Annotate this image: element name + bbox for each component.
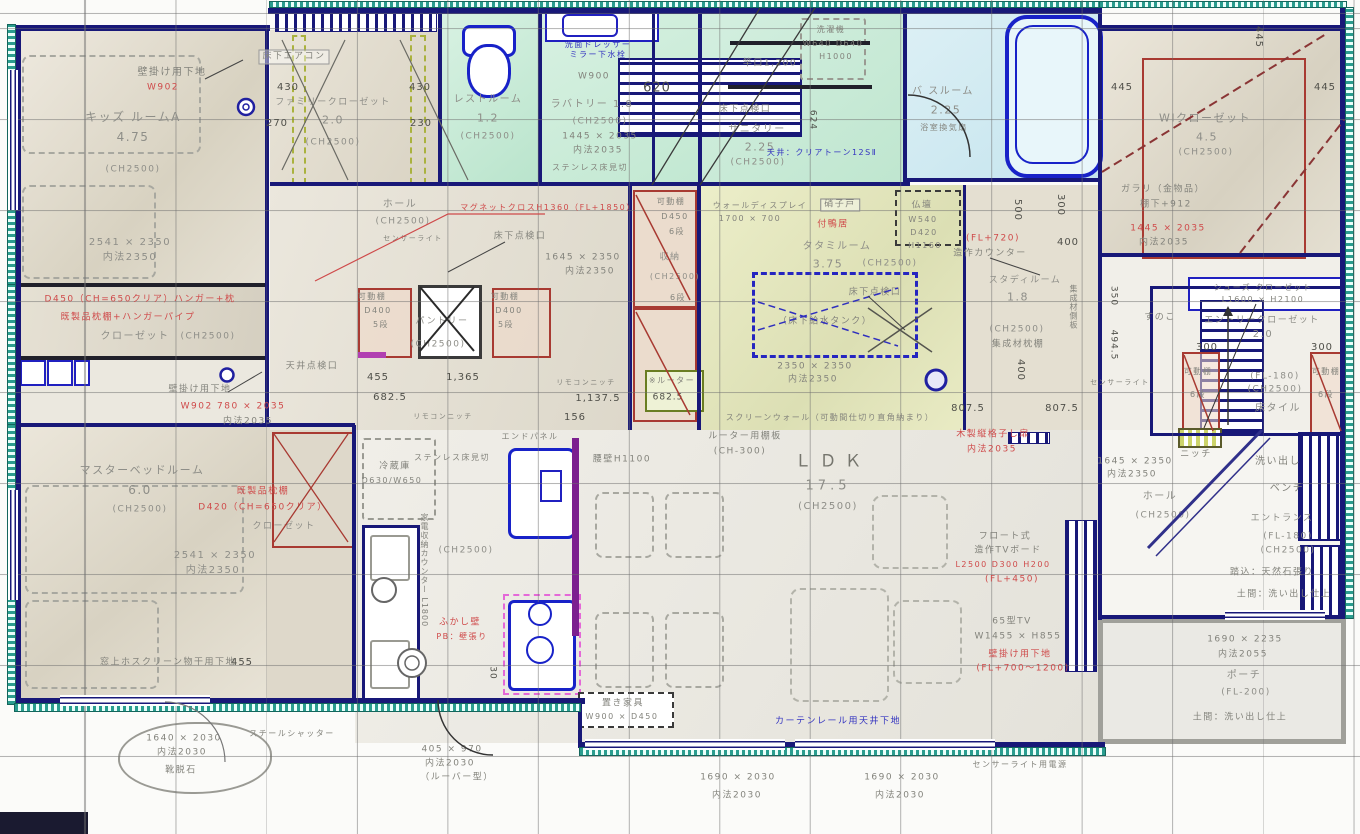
lavatory-inner-label: 内法2035	[573, 147, 623, 156]
dining-chair-icon	[665, 492, 724, 558]
wall-segment	[697, 185, 701, 430]
restroom-size-label: 1.2	[477, 113, 499, 124]
butsudan-w-label: W540	[908, 216, 937, 224]
floor-tile-label: 床タイル	[1255, 404, 1301, 414]
placed-furniture-label: 置き家具	[602, 700, 644, 709]
window-symbol	[20, 360, 46, 386]
window	[8, 490, 18, 600]
study-fl-label: (FL+720)	[966, 235, 1020, 244]
entry-closet-size-label: 2.0	[1253, 330, 1273, 340]
exterior-hatch	[8, 285, 15, 425]
wall-segment	[1150, 433, 1345, 436]
dim-1137-5: 1,137.5	[575, 394, 620, 404]
tv-wall-fl-label: (FL+700〜1200)	[976, 665, 1069, 674]
entry-fl-label: (FL-180)	[1250, 373, 1299, 382]
shelf-count-label: 6段	[1190, 391, 1206, 399]
laminated-shelf-label: 集成材枕棚	[992, 341, 1045, 350]
ceiling-finish-label: 天井：クリアトーン12SⅡ	[767, 149, 877, 157]
dim-500: 500	[1012, 199, 1022, 221]
window	[1225, 610, 1325, 620]
dim-300: 300	[1196, 343, 1218, 353]
family-closet-ch-label: (CH2500)	[306, 139, 361, 148]
tatami-name-label: タタミルーム	[803, 242, 872, 252]
shoes-closet-size-label: L1600 × H2100	[1222, 296, 1304, 304]
study-size-label: 1.8	[1007, 292, 1029, 303]
bath-fan-label: 浴室換気扇	[920, 124, 968, 132]
wall-segment	[270, 182, 910, 186]
armchair-icon	[872, 495, 948, 569]
study-ch-label: (CH2500)	[990, 326, 1045, 335]
araidashi-label: 洗い出し	[1255, 457, 1301, 467]
kids-closet-red1-label: D450（CH=650クリア）ハンガー+枕	[45, 296, 236, 305]
pantry-ch-label: (CH2500)	[411, 341, 466, 350]
tv-board-fl-label: (FL+450)	[985, 576, 1039, 585]
window	[795, 739, 995, 750]
tatami-inner-label: 内法2350	[788, 376, 838, 385]
wall-segment	[1150, 286, 1153, 433]
porch-inner-label: 内法2055	[1218, 651, 1268, 660]
dim-230: 230	[410, 119, 432, 129]
floor-hatch-label: 床下点検口	[719, 106, 772, 115]
master-size-label: 6.0	[128, 484, 152, 496]
stove-clearance-box	[503, 594, 581, 695]
kids-ch-label: (CH2500)	[106, 166, 161, 175]
restroom-ch-label: (CH2500)	[461, 133, 516, 142]
dim-300: 300	[1311, 343, 1333, 353]
fridge-label: 冷蔵庫	[379, 463, 411, 472]
shelf-count-label: 6段	[669, 228, 685, 236]
dim-350: 350	[1109, 286, 1118, 306]
shelf-count-label: 6段	[1318, 391, 1334, 399]
wall-display-size-label: 1700 × 700	[719, 215, 781, 223]
shelf-depth-label: D400	[364, 307, 391, 315]
wall-segment	[268, 8, 1100, 14]
wall-segment	[1100, 253, 1345, 257]
dim-807-5: 807.5	[951, 404, 985, 414]
dresser-label: 洗面ドレッサー	[565, 41, 632, 49]
vanity-sink-icon	[562, 14, 618, 37]
porch-name-label: ポーチ	[1227, 671, 1262, 681]
shelf-count-label: 5段	[373, 321, 389, 329]
wic-ch-label: (CH2500)	[1179, 149, 1234, 158]
shelf-count-label: 5段	[498, 321, 514, 329]
storage-name-label: 収納	[659, 254, 680, 263]
dim-1365: 1,365	[446, 373, 480, 383]
wall-segment	[438, 8, 442, 185]
exterior-hatch	[1346, 8, 1353, 618]
window	[8, 70, 18, 210]
wall-note-label: 壁掛け用下地	[168, 386, 231, 395]
window-dim-label: 1640 × 2030	[146, 735, 222, 744]
bathtub-inner-icon	[1015, 25, 1089, 164]
wall-segment	[905, 178, 1100, 182]
bath-size-label: 2.25	[931, 105, 962, 116]
tv-board-size-label: L2500 D300 H200	[955, 561, 1050, 569]
wall-segment	[1098, 8, 1102, 620]
sanitary-ch-label: (CH2500)	[731, 159, 786, 168]
dim-30: 30	[488, 666, 497, 679]
window	[585, 739, 785, 750]
shelf-label: 可動棚	[491, 293, 520, 301]
window-symbol	[47, 360, 73, 386]
wall-segment	[352, 425, 356, 704]
entrance-fl-label: (FL-180)	[1263, 533, 1312, 542]
dining-chair-icon	[665, 612, 724, 688]
dim-445: 445	[1111, 83, 1133, 93]
wall-segment	[265, 25, 269, 425]
window-inner-label: 内法2030	[712, 792, 762, 801]
washer-label: 洗濯機	[817, 26, 846, 34]
window-inner-label: 内法2035	[223, 418, 273, 427]
master-inner-label: 内法2350	[186, 566, 240, 576]
dim-445: 445	[1253, 26, 1263, 48]
window-inner-label: 内法2030	[157, 749, 207, 758]
entry-deck-slats	[1298, 432, 1346, 541]
storage-inner-label: 内法2350	[565, 268, 615, 277]
wall-segment	[963, 185, 966, 430]
hall-ch-label: (CH2500)	[376, 218, 431, 227]
sensor-light-label: センサーライト	[383, 236, 443, 243]
bench-label: ベンチ	[1270, 484, 1305, 494]
tv-board-label1: フロート式	[979, 533, 1032, 542]
butsudan-h-label: H1160	[908, 242, 942, 250]
shelf-depth-label: D400	[495, 307, 522, 315]
shelf-label: 可動棚	[358, 293, 387, 301]
entry-ch-label: (CH2500)	[1248, 386, 1303, 395]
bed-icon	[25, 485, 244, 594]
kamoi-label: 付鴨居	[817, 221, 849, 230]
ldk-ch-label: (CH2500)	[798, 502, 858, 512]
ldk-name-label: ＬＤＫ	[795, 454, 870, 471]
floor-plan-canvas: キッズ ルームA 4.75 (CH2500) 2541 × 2350 内法235…	[0, 0, 1360, 834]
entry-hall-name-label: ホール	[1143, 492, 1178, 502]
tv-board-icon	[1065, 520, 1097, 672]
closet-hatch	[275, 12, 437, 32]
placed-furniture-size-label: W900 × D450	[586, 713, 659, 721]
door-inner-label: 内法2030	[425, 760, 475, 769]
entry-hall-ch-label: (CH2500)	[1136, 512, 1191, 521]
wall-segment	[652, 8, 655, 185]
sensor-power-label: センサーライト用電源	[973, 761, 1068, 769]
kitchen-wall-purple-cap	[358, 352, 386, 358]
room-fill-ldk	[355, 430, 1100, 743]
built-in-counter-label: 造作カウンター	[953, 250, 1027, 259]
dim-270: 270	[266, 119, 288, 129]
underfloor-ac-duct	[410, 35, 426, 184]
dim-156: 156	[564, 413, 586, 423]
dim-445: 445	[1314, 83, 1336, 93]
remote-niche-label: リモコンニッチ	[413, 414, 473, 421]
wall-segment	[903, 8, 907, 182]
bath-name-label: バ スルーム	[912, 87, 974, 97]
placed-furniture-box	[578, 692, 674, 728]
dresser-label2: ミラー下水栓	[570, 51, 627, 59]
window-dim-label: 1690 × 2030	[864, 774, 940, 783]
shoes-closet-label: シューズ クローゼット	[1214, 284, 1313, 292]
closet-shelf-label: 既製品枕棚	[237, 488, 290, 497]
storage-dim-label: 1645 × 2350	[545, 254, 621, 263]
lavatory-dim-label: 1445 × 2035	[562, 133, 638, 142]
washer-size-label: W640 D640	[803, 40, 864, 48]
tv-wall-note-label: 壁掛け用下地	[988, 651, 1051, 660]
dim-494-5: 494.5	[1109, 330, 1118, 361]
dim-807-5: 807.5	[1045, 404, 1079, 414]
window-dim-label: 1690 × 2030	[700, 774, 776, 783]
sensor-light-label: センサーライト	[1090, 380, 1150, 387]
dim-455: 455	[367, 373, 389, 383]
window	[60, 695, 210, 706]
wic-name-label: WIクローゼット	[1159, 113, 1251, 124]
family-closet-name-label: ファミリークローゼット	[275, 99, 391, 108]
niche-label: ニッチ	[1180, 451, 1212, 460]
curtain-rail-label: カーテンレール用天井下地	[775, 718, 901, 727]
window-code-label: W902 780 × 2035	[181, 403, 286, 412]
wall-segment	[15, 356, 268, 360]
shoe-stone-label: 靴脱石	[165, 767, 197, 776]
router-shelf-ch-label: (CH-300)	[714, 448, 767, 457]
half-wall-label: 腰壁H1100	[593, 456, 651, 465]
sunoko-label: すのこ	[1144, 314, 1176, 323]
storage-ch-label: (CH2500)	[650, 273, 700, 281]
toilet-bowl-icon	[467, 44, 511, 98]
kids-wall-code-label: W902	[147, 84, 179, 93]
tatami-ch-label: (CH2500)	[863, 260, 918, 269]
kids-inner-label: 内法2350	[103, 253, 157, 263]
end-panel-label: エンドパネル	[502, 433, 559, 441]
kids-closet-name-label: クローゼット	[101, 332, 170, 342]
wic-shelf-label: 棚下+912	[1140, 201, 1192, 210]
louver-type-label: （ルーバー型）	[420, 774, 493, 783]
floor-edge-label: ステンレス床見切	[414, 454, 490, 462]
washer-size-label2: H1000	[819, 53, 853, 61]
kitchen-ch-label: (CH2500)	[439, 547, 494, 556]
kids-size-label: 4.75	[117, 131, 150, 143]
master-dim-label: 2541 × 2350	[174, 551, 256, 561]
dim-624: 624	[808, 110, 817, 130]
tatami-size-label: 3.75	[813, 259, 844, 270]
underfloor-tank-box	[752, 272, 918, 358]
kids-wall-note-label: 壁掛け用下地	[138, 68, 207, 78]
sanitary-name-label: サニタリー	[728, 125, 786, 135]
shelf-depth-label: D450	[661, 213, 688, 221]
side-panel-label: 集成材側板	[1069, 285, 1077, 330]
tv-size-label: W1455 × H855	[974, 633, 1061, 642]
kids-closet-ch-label: (CH2500)	[181, 333, 236, 342]
entry-hall-dim-label: 1645 × 2350	[1097, 458, 1173, 467]
ldk-size-label: 17.5	[806, 480, 851, 493]
wic-inner-label: 内法2035	[1139, 239, 1189, 248]
tatami-dim-label: 2350 × 2350	[777, 363, 853, 372]
entry-closet-name-label: エントリークローゼット	[1204, 317, 1320, 326]
dining-chair-icon	[595, 492, 654, 558]
furred-wall-label: ふかし壁	[439, 619, 481, 628]
window-inner-label: 内法2030	[875, 792, 925, 801]
steel-shutter-label: スチールシャッター	[249, 730, 335, 738]
dim-300: 300	[1055, 194, 1065, 216]
closet-shelf-spec-label: D420（CH=650クリア）	[198, 504, 327, 513]
furred-wall-finish-label: PB：壁張り	[436, 633, 487, 641]
pole-opening-label: 竿口1,200	[743, 60, 797, 69]
lavatory-ch-label: (CH2500)	[573, 118, 628, 127]
step-finish-label: 踏込：天然石張り	[1230, 569, 1314, 578]
porch-fl-label: (FL-200)	[1221, 689, 1270, 698]
kitchen-wall-purple	[572, 438, 579, 636]
family-closet-size-label: 2.0	[322, 115, 344, 126]
wall-display-label: ウォールディスプレイ	[713, 202, 807, 210]
router-shelf-label: ルーター用棚板	[708, 433, 782, 442]
porch-doma-label: 土間：洗い出し仕上	[1193, 714, 1288, 723]
dim-682-5: 682.5	[373, 393, 407, 403]
kitchen-faucet-icon	[540, 470, 562, 502]
appliance-counter-label: 家電収納カウンター L1800	[420, 513, 428, 627]
shelf-label: 可動棚	[1312, 368, 1341, 376]
wall-segment	[15, 423, 355, 427]
shelf-label: 可動棚	[657, 198, 686, 206]
hall-name-label: ホール	[383, 200, 418, 210]
wic-size-label: 4.5	[1196, 132, 1218, 143]
wall-segment	[538, 8, 542, 185]
wall-segment	[698, 8, 702, 185]
closet-name-label: クローゼット	[252, 523, 315, 532]
exterior-hatch	[270, 2, 1100, 7]
entry-hall-inner-label: 内法2350	[1107, 471, 1157, 480]
kids-dim-label: 2541 × 2350	[89, 238, 171, 248]
dim-430: 430	[277, 83, 299, 93]
dim-455: 455	[231, 658, 253, 668]
dining-chair-icon	[595, 612, 654, 688]
wic-louver-label: ガラリ（金物品）	[1121, 186, 1205, 195]
master-name-label: マスターベッドルーム	[80, 465, 205, 476]
storage-shelf	[633, 190, 697, 308]
dim-w900: W900	[578, 73, 610, 82]
lavatory-name-label: ラバトリー 1.8	[551, 100, 634, 110]
fridge-size-label: D630/W650	[362, 477, 423, 485]
window-symbol	[74, 360, 90, 386]
wall-segment	[15, 25, 270, 31]
butsudan-d-label: D420	[910, 229, 937, 237]
glass-door-label: 硝子戸	[820, 199, 860, 212]
shelf-count-label: 6段	[670, 294, 686, 302]
shelf-label: 可動棚	[1184, 368, 1213, 376]
wall-segment	[15, 283, 268, 287]
floor-edge-label: ステンレス床見切	[552, 164, 628, 172]
niche-icon	[1178, 428, 1222, 448]
bed-icon	[25, 600, 159, 689]
dim-620: 620	[643, 82, 671, 95]
laundry-base-label: 窓上ホスクリーン物干用下地	[100, 659, 236, 668]
armchair-icon	[893, 600, 962, 684]
lattice-inner-label: 内法2035	[967, 446, 1017, 455]
dim-430: 430	[409, 83, 431, 93]
magnet-cloth-label: マグネットクロスH1360（FL+1850）	[460, 204, 636, 212]
appliance-box-icon	[370, 640, 410, 689]
lattice-door-label: 木製縦格子し扉	[956, 431, 1030, 440]
kids-closet-red2-label: 既製品枕棚+ハンガーパイプ	[61, 314, 196, 323]
remote-niche-label: リモコンニッチ	[556, 380, 616, 387]
study-name-label: スタディルーム	[989, 277, 1062, 286]
pantry-name-label: パントリー	[416, 318, 469, 327]
tv-board-label2: 造作TVボード	[974, 547, 1041, 556]
underfloor-ac-label: 床下エアコン	[258, 50, 329, 65]
dim-400: 400	[1057, 238, 1079, 248]
room-fill-study	[965, 185, 1100, 430]
porch-dim-label: 1690 × 2235	[1207, 636, 1283, 645]
title-block-fragment	[0, 812, 88, 834]
router-label: ※ルーター	[649, 377, 695, 385]
entrance-ch-label: (CH2500)	[1261, 547, 1316, 556]
dim-682-5: 682.5	[653, 394, 684, 403]
door-dim-label: 405 × 970	[421, 746, 482, 755]
ceiling-hatch-label: 天井点検口	[286, 363, 339, 372]
floor-hatch-label: 床下点検口	[849, 289, 902, 298]
master-ch-label: (CH2500)	[113, 506, 168, 515]
appliance-box-icon	[370, 535, 410, 581]
entrance-name-label: エントランス	[1251, 515, 1314, 524]
floor-hatch-label: 床下点検口	[494, 233, 547, 242]
tv-label: 65型TV	[992, 618, 1032, 627]
exterior-hatch	[1100, 2, 1346, 7]
doma-finish-label: 土間：洗い出し仕上	[1237, 591, 1332, 600]
kids-name-label: キッズ ルームA	[85, 111, 181, 123]
laundry-pole	[728, 85, 872, 89]
dim-400: 400	[1015, 359, 1025, 381]
water-tank-label: （床下給水タンク）	[778, 318, 873, 327]
butsudan-label: 仏壇	[911, 202, 932, 211]
screen-wall-label: スクリーンウォール（可動間仕切り直角納まり）	[726, 414, 935, 422]
wic-dim-label: 1445 × 2035	[1130, 225, 1206, 234]
wall-segment	[1100, 25, 1345, 31]
bed-icon	[22, 185, 156, 279]
wall-segment	[628, 185, 632, 430]
sofa-icon	[790, 588, 889, 702]
restroom-name-label: レストルーム	[454, 95, 523, 105]
